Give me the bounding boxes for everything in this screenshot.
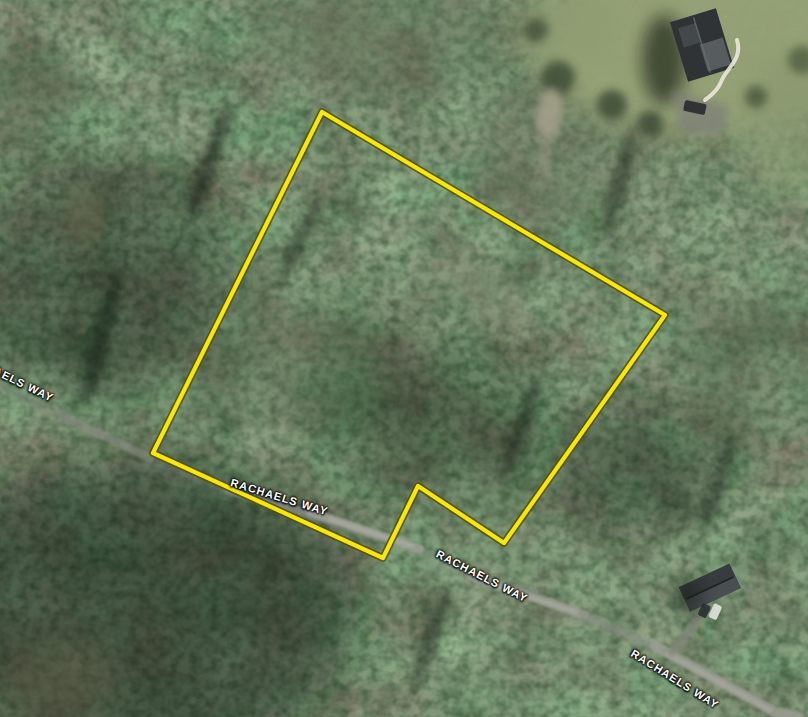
satellite-map-view[interactable]: RACHAELS WAY RACHAELS WAY RACHAELS WAY R… xyxy=(0,0,808,717)
house-se-tree-shadow xyxy=(670,578,702,618)
satellite-imagery xyxy=(0,0,808,717)
